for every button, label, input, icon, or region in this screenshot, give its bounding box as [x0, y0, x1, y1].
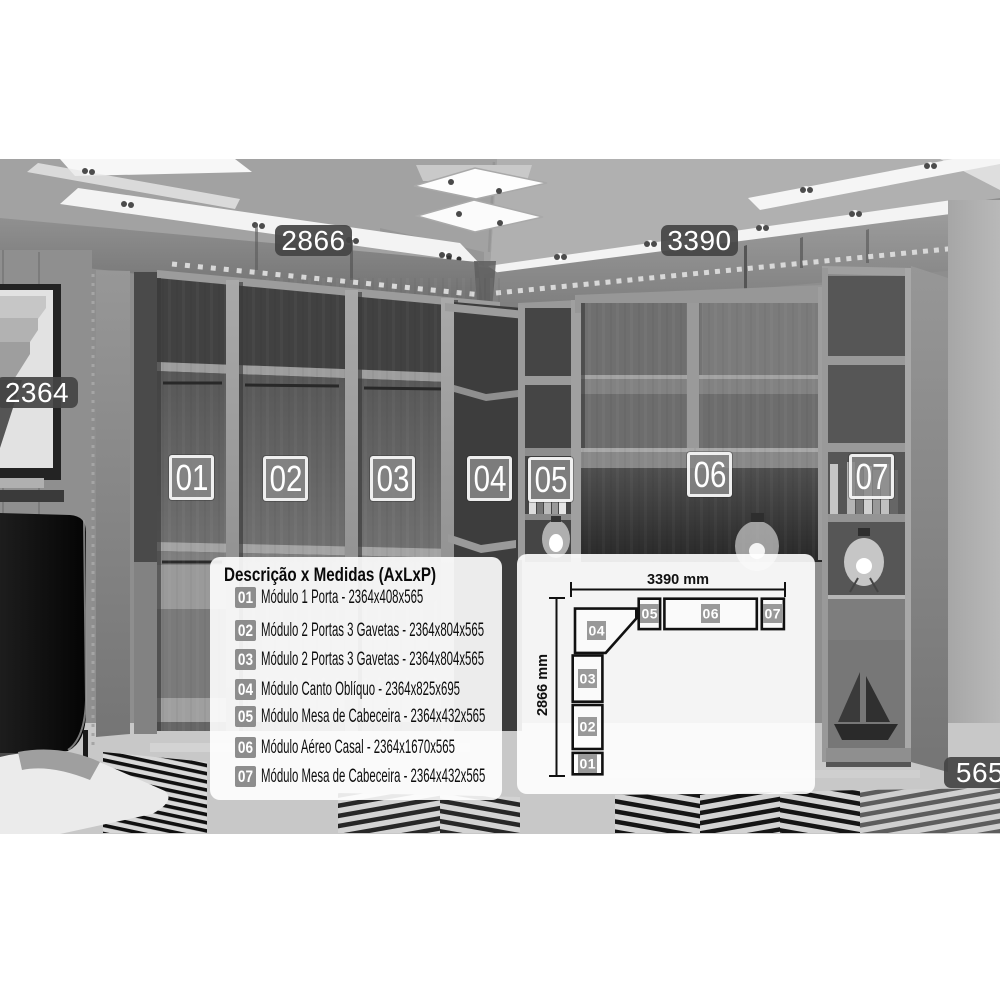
svg-text:07: 07: [765, 606, 781, 622]
svg-text:06: 06: [703, 606, 719, 622]
svg-text:05: 05: [642, 606, 658, 622]
svg-text:02: 02: [580, 719, 596, 735]
svg-text:04: 04: [589, 623, 605, 639]
svg-text:03: 03: [580, 671, 596, 687]
svg-text:3390 mm: 3390 mm: [647, 572, 709, 588]
svg-text:01: 01: [580, 756, 596, 772]
svg-text:2866 mm: 2866 mm: [535, 654, 551, 716]
